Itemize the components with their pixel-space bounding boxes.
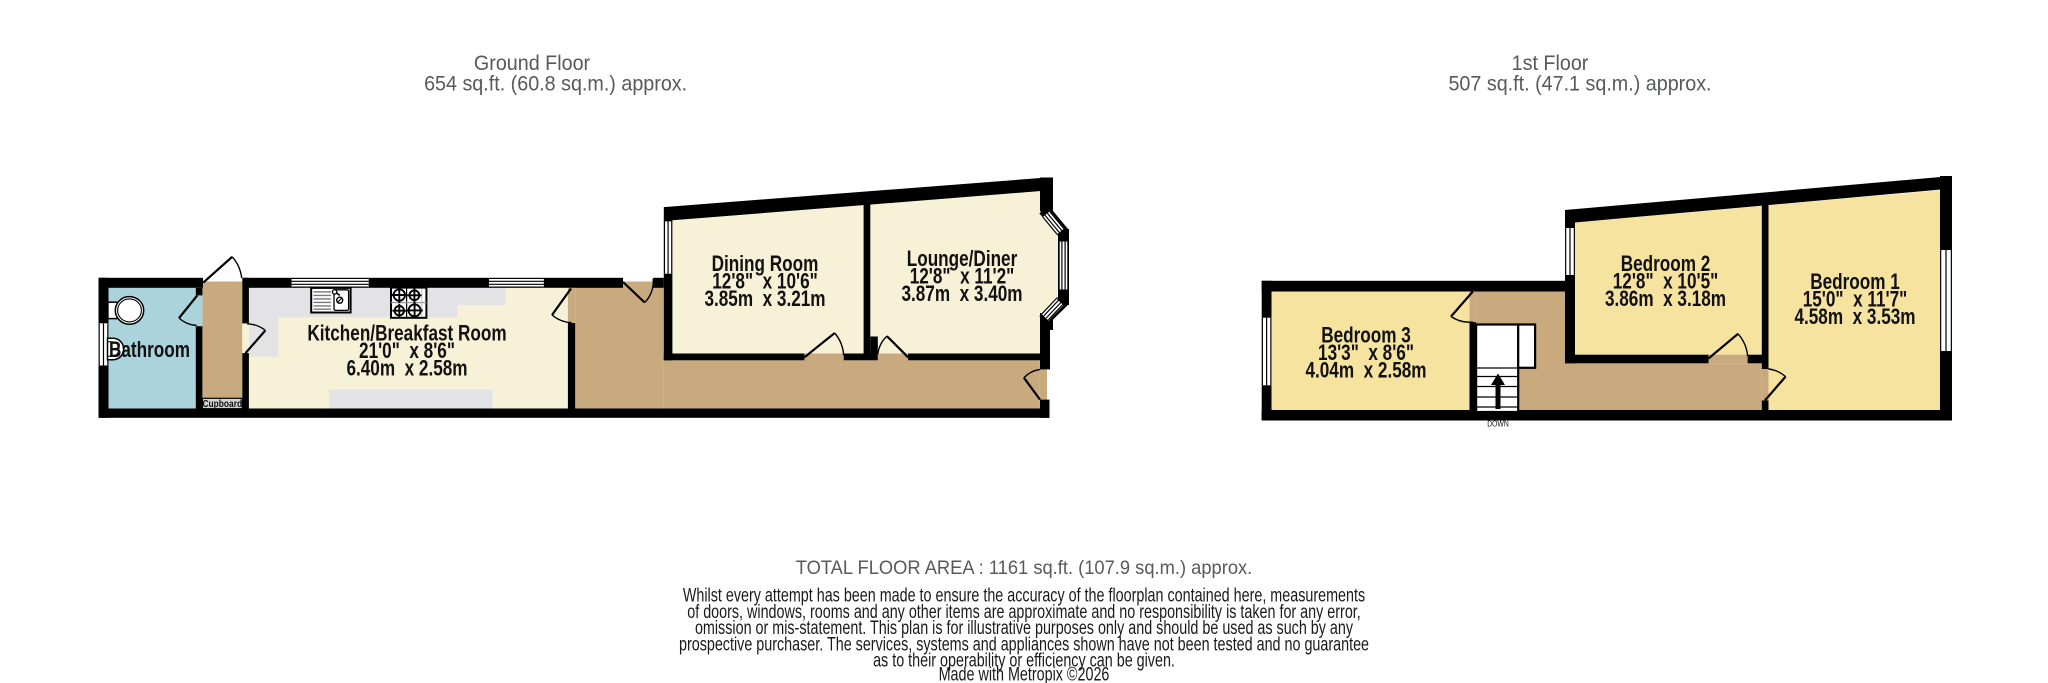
svg-text:4.58m x 3.53m: 4.58m x 3.53m bbox=[1794, 305, 1915, 330]
svg-text:3.85m x 3.21m: 3.85m x 3.21m bbox=[704, 287, 825, 312]
svg-text:654 sq.ft. (60.8 sq.m.) approx: 654 sq.ft. (60.8 sq.m.) approx. bbox=[424, 73, 687, 96]
svg-text:TOTAL FLOOR AREA : 1161 sq.ft.: TOTAL FLOOR AREA : 1161 sq.ft. (107.9 sq… bbox=[796, 557, 1253, 578]
svg-text:Made with Metropix ©2026: Made with Metropix ©2026 bbox=[939, 664, 1110, 683]
svg-text:Cupboard: Cupboard bbox=[202, 398, 242, 410]
svg-text:DOWN: DOWN bbox=[1487, 419, 1509, 429]
svg-text:1st Floor: 1st Floor bbox=[1512, 52, 1589, 75]
svg-text:Ground Floor: Ground Floor bbox=[474, 52, 590, 75]
svg-text:507 sq.ft. (47.1 sq.m.) approx: 507 sq.ft. (47.1 sq.m.) approx. bbox=[1448, 73, 1711, 96]
svg-text:Bathroom: Bathroom bbox=[109, 338, 190, 363]
svg-text:3.87m x 3.40m: 3.87m x 3.40m bbox=[901, 282, 1022, 307]
svg-text:4.04m x 2.58m: 4.04m x 2.58m bbox=[1305, 358, 1426, 383]
svg-text:6.40m x 2.58m: 6.40m x 2.58m bbox=[346, 356, 467, 381]
svg-text:3.86m x 3.18m: 3.86m x 3.18m bbox=[1605, 287, 1726, 312]
